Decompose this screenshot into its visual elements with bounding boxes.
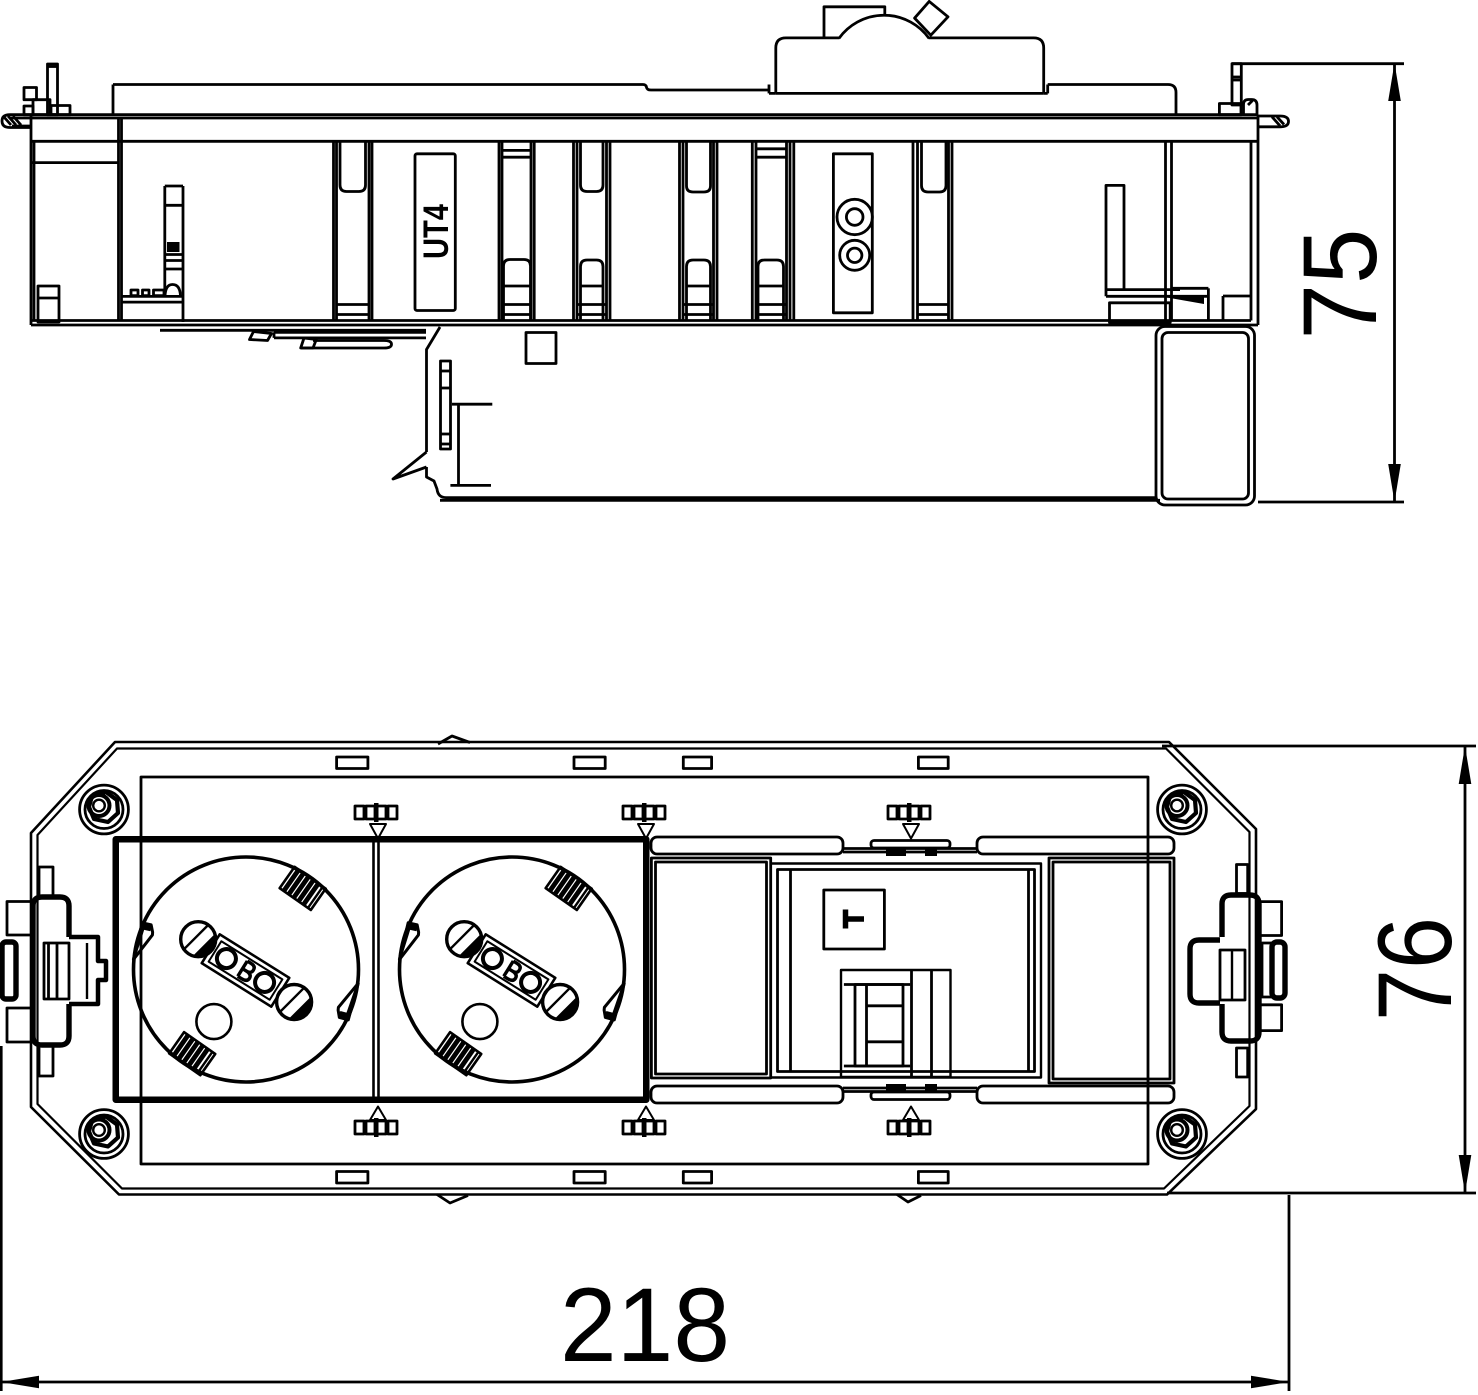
svg-text:75: 75 [1282,229,1399,340]
svg-text:UT4: UT4 [417,204,456,259]
svg-text:218: 218 [560,1267,730,1384]
svg-text:76: 76 [1357,917,1474,1021]
